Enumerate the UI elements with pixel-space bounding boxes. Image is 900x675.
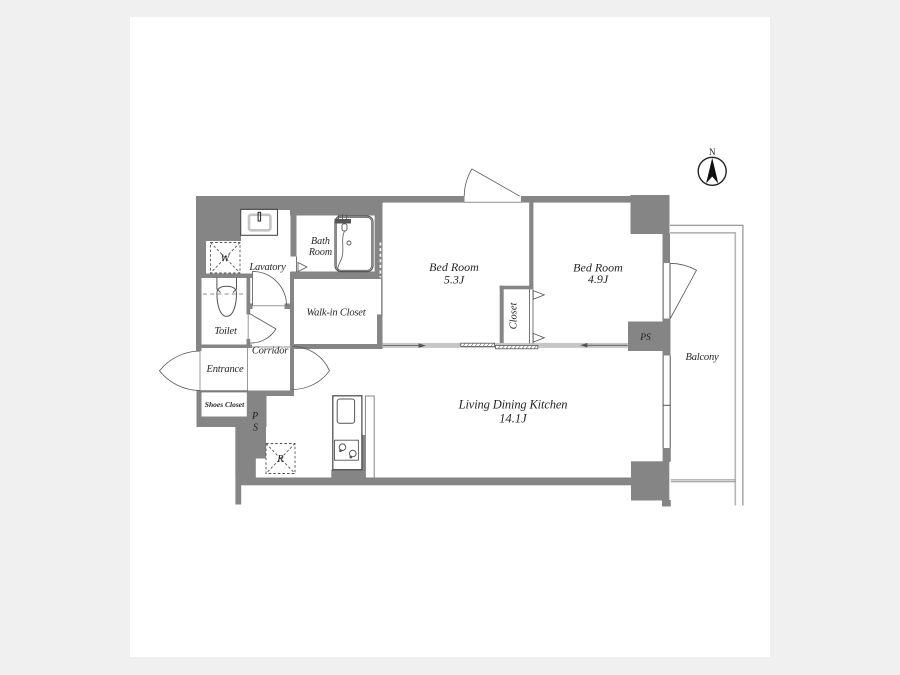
svg-text:Lavatory: Lavatory	[248, 262, 286, 273]
svg-text:Bath: Bath	[311, 236, 330, 247]
svg-text:14.1J: 14.1J	[499, 412, 528, 426]
svg-text:S: S	[253, 422, 258, 433]
svg-text:Closet: Closet	[509, 302, 520, 330]
svg-text:Balcony: Balcony	[685, 352, 719, 363]
svg-text:Shoes Closet: Shoes Closet	[205, 400, 245, 409]
svg-text:N: N	[709, 147, 716, 157]
svg-text:P: P	[251, 411, 258, 422]
svg-text:W: W	[221, 254, 231, 265]
svg-text:5.3J: 5.3J	[444, 273, 465, 287]
svg-text:R: R	[276, 454, 284, 465]
svg-text:PS: PS	[639, 333, 651, 343]
svg-text:Walk-in Closet: Walk-in Closet	[307, 308, 367, 319]
svg-text:Room: Room	[308, 247, 332, 258]
svg-text:4.9J: 4.9J	[588, 272, 609, 286]
svg-text:Entrance: Entrance	[206, 364, 244, 375]
svg-text:Toilet: Toilet	[214, 326, 238, 337]
svg-text:Corridor: Corridor	[252, 345, 289, 356]
svg-text:Living Dining Kitchen: Living Dining Kitchen	[458, 398, 568, 412]
